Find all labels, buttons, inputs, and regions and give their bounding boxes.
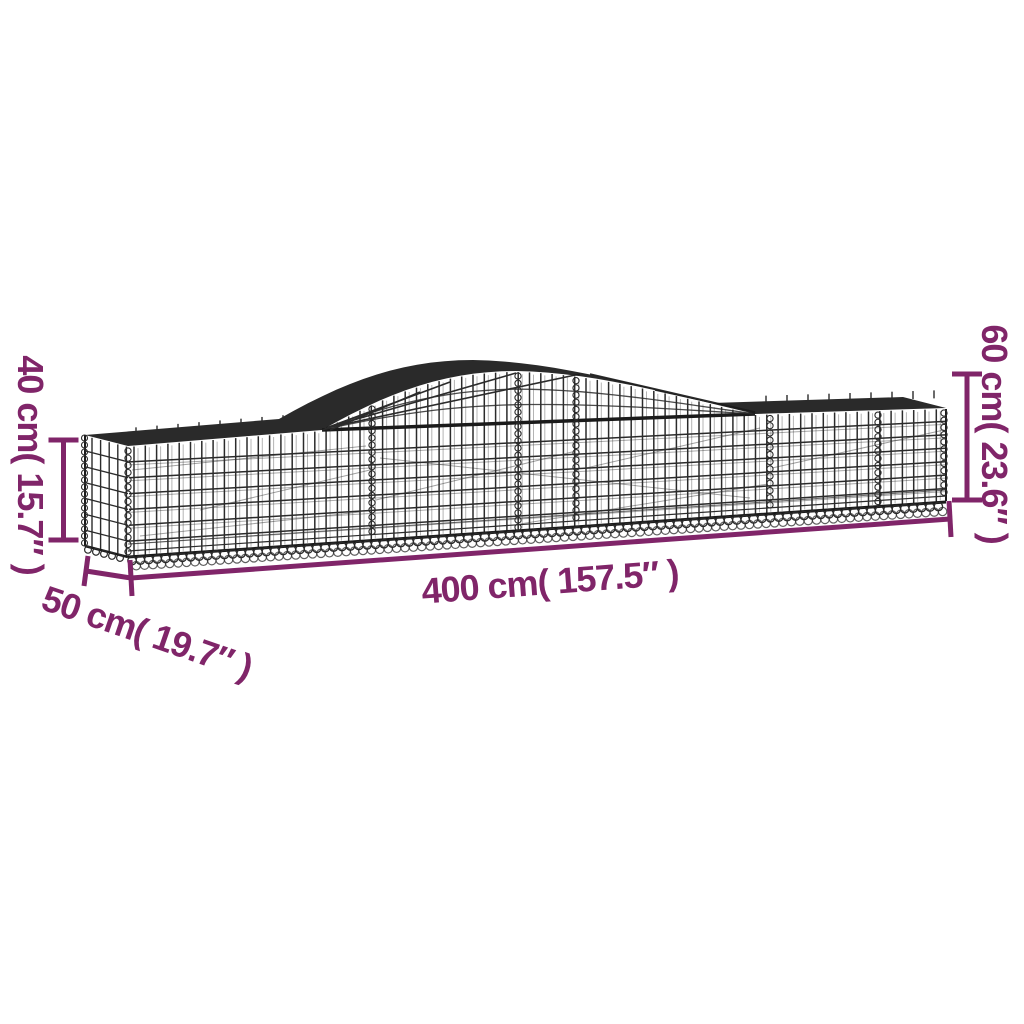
- gabion-basket-illustration: [0, 0, 1024, 1024]
- dimension-label-height-front: 40 cm( 15.7″ ): [12, 355, 48, 574]
- dimension-label-height-arch: 60 cm( 23.6″ ): [976, 324, 1012, 543]
- product-dimension-diagram: 40 cm( 15.7″ ) 60 cm( 23.6″ ) 400 cm( 15…: [0, 0, 1024, 1024]
